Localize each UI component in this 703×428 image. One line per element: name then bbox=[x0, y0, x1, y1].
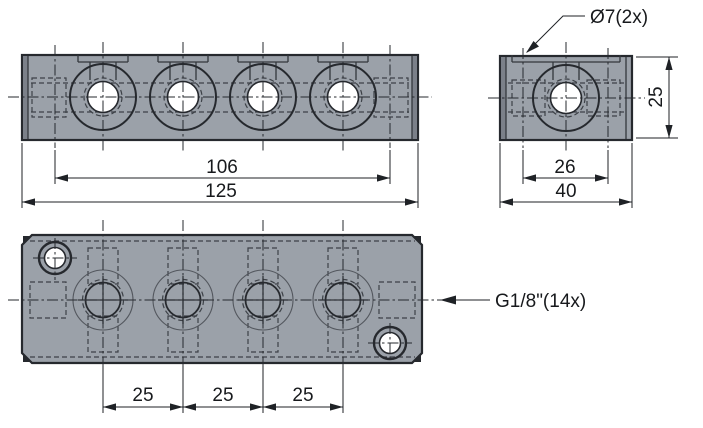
dimension-top-pitches: 25 25 25 bbox=[103, 366, 343, 413]
dim-label-40: 40 bbox=[555, 181, 576, 202]
side-view bbox=[488, 42, 645, 152]
dim-label-26: 26 bbox=[554, 157, 575, 178]
dim-label-pitch-1: 25 bbox=[132, 385, 153, 406]
dim-label-pitch-2: 25 bbox=[212, 385, 233, 406]
dimension-front-hole-span: 106 bbox=[55, 150, 390, 184]
callout-mount-hole: Ø7(2x) bbox=[526, 7, 648, 53]
dim-label-106: 106 bbox=[206, 157, 238, 178]
dimension-side-height: 25 bbox=[636, 57, 678, 138]
callout-mount-hole-label: Ø7(2x) bbox=[590, 7, 648, 28]
callout-port-label: G1/8"(14x) bbox=[495, 291, 586, 312]
dim-label-125: 125 bbox=[205, 181, 237, 202]
dim-label-pitch-3: 25 bbox=[292, 385, 313, 406]
callout-port: G1/8"(14x) bbox=[440, 291, 586, 312]
top-view bbox=[8, 220, 448, 372]
front-view bbox=[8, 42, 432, 152]
drawing-canvas: 106 125 bbox=[0, 0, 703, 428]
dim-label-25-height: 25 bbox=[646, 86, 667, 107]
dimension-side-port-spacing: 26 bbox=[523, 150, 608, 184]
technical-drawing-page: 106 125 bbox=[0, 0, 703, 428]
